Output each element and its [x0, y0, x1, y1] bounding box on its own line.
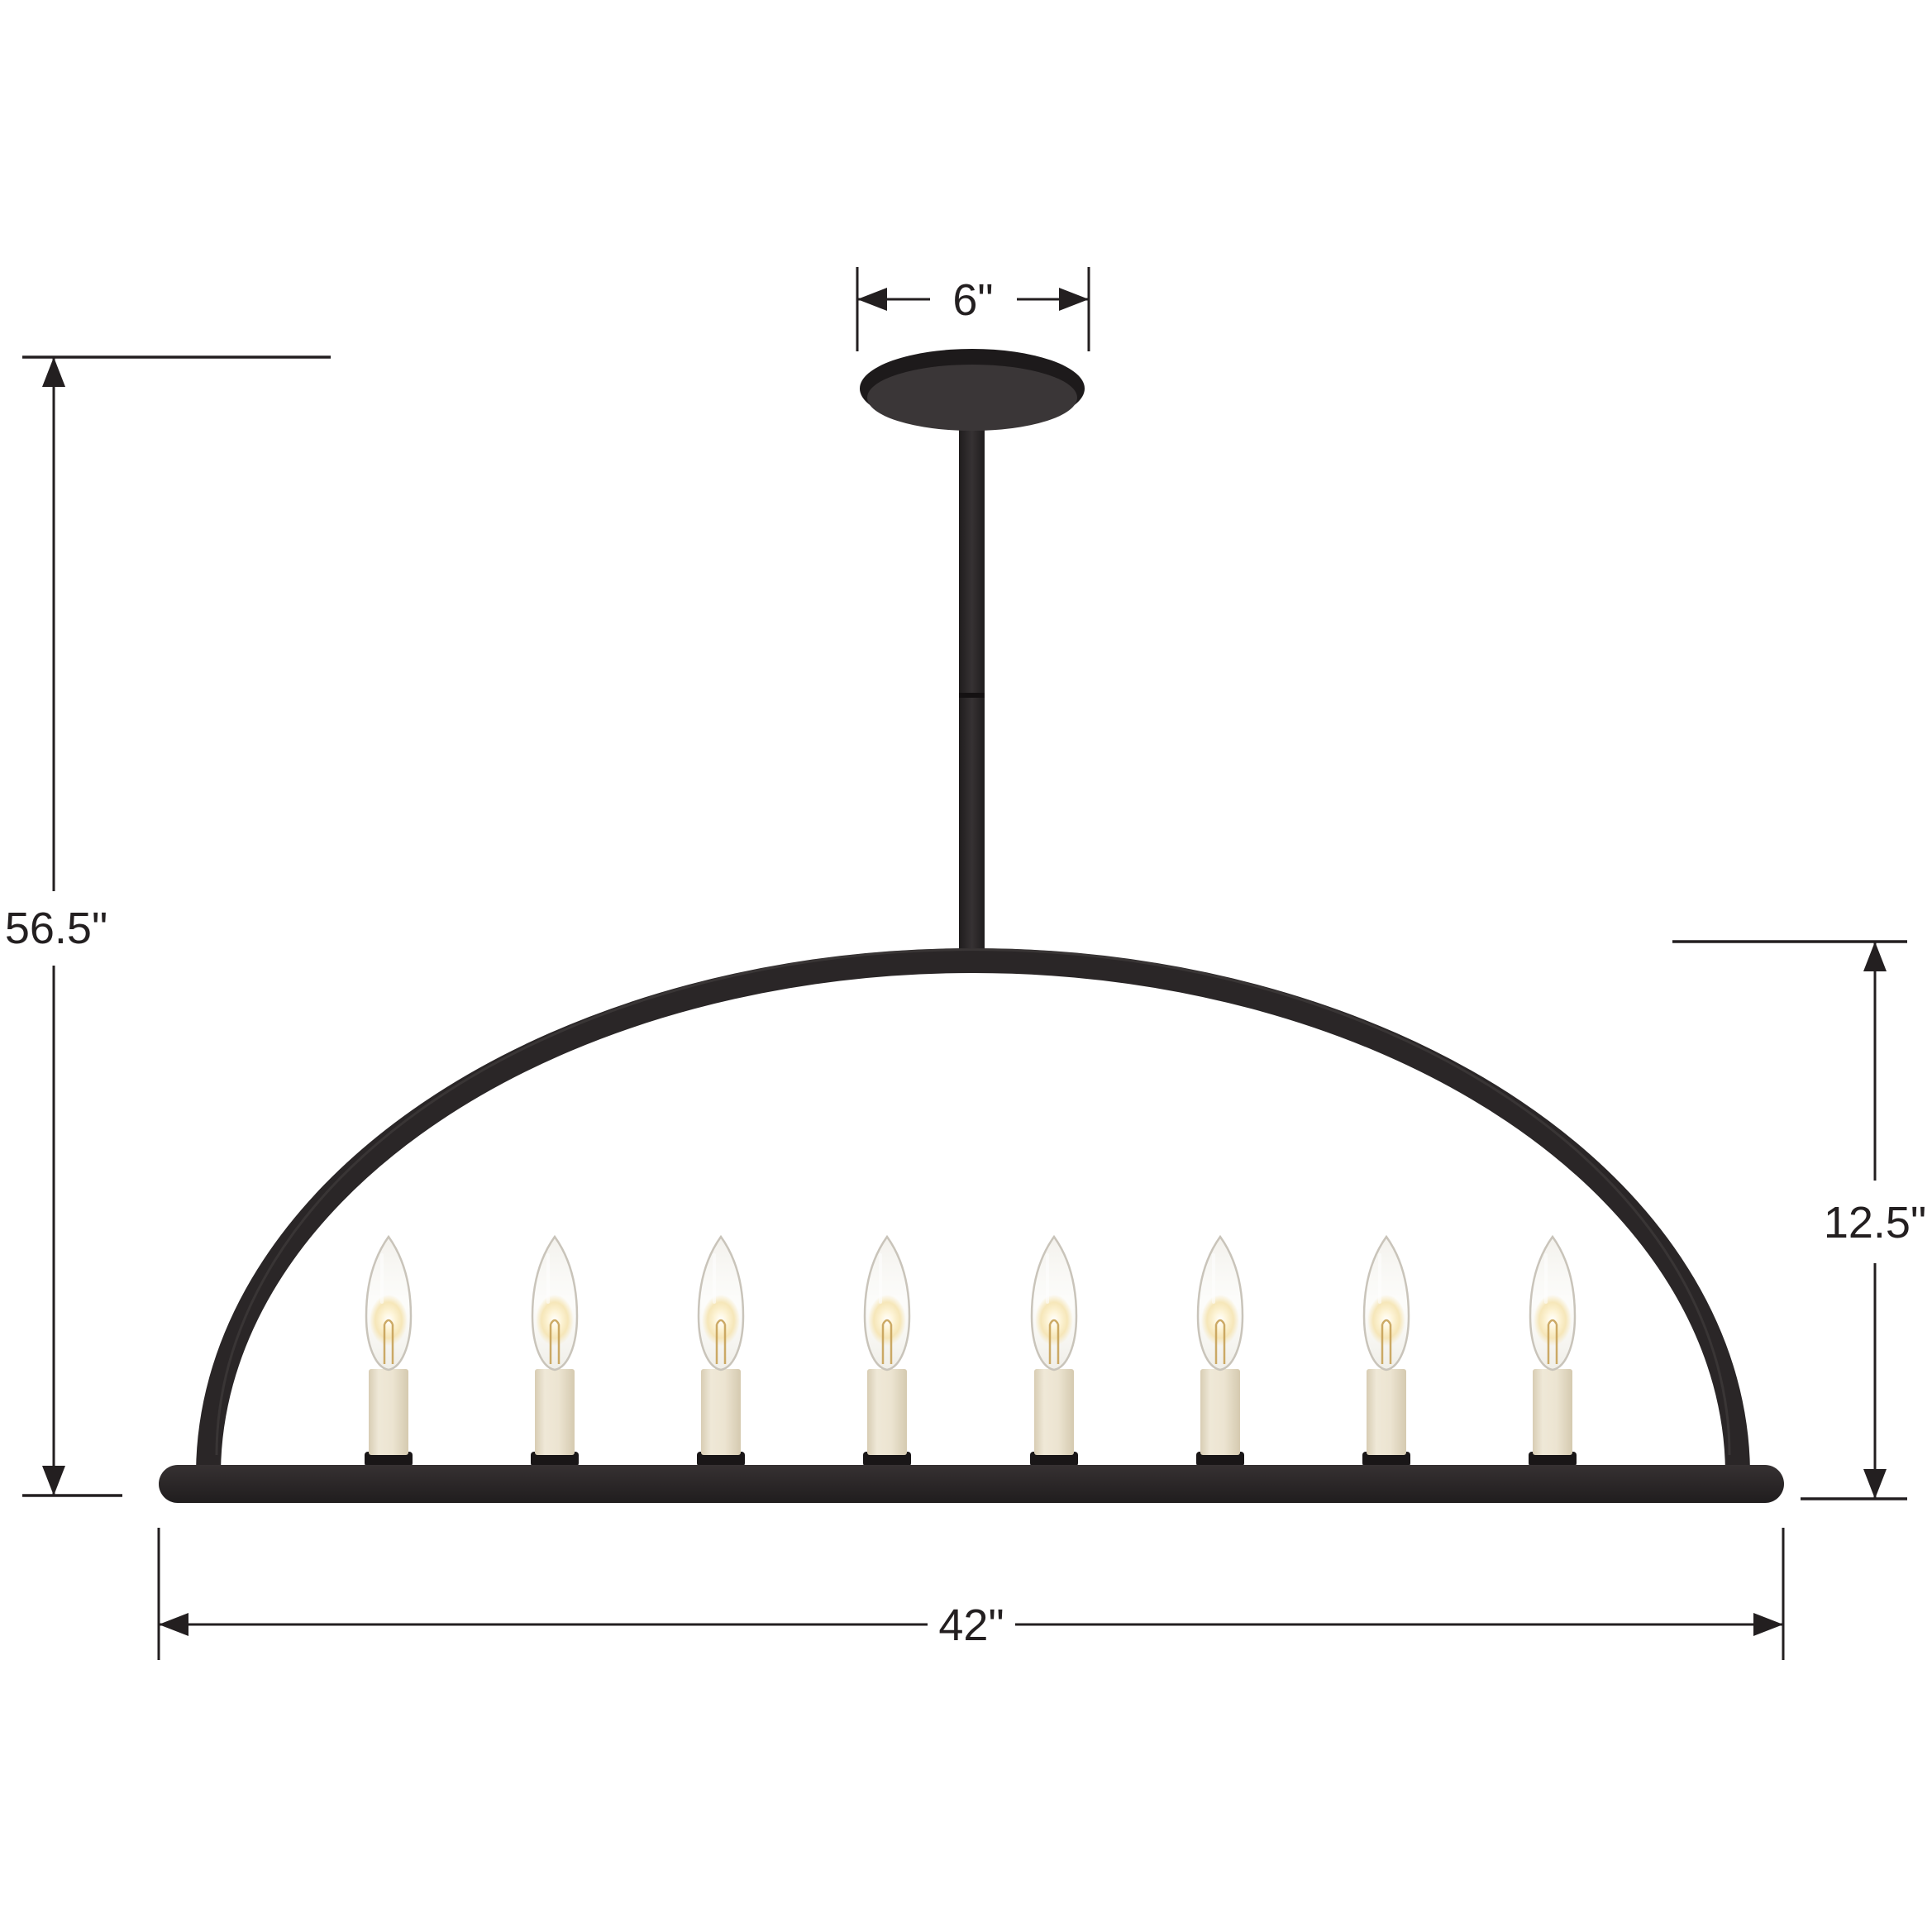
- arrow-down-icon: [1863, 1469, 1887, 1499]
- dimension-canopy-width: 6": [857, 267, 1089, 351]
- arch-frame-highlight: [217, 950, 1729, 1455]
- candle-light: [1030, 1237, 1078, 1467]
- linear-bar: [159, 1465, 1784, 1503]
- candle-sleeve: [1034, 1369, 1074, 1455]
- candle-light: [531, 1237, 579, 1467]
- candle-light: [365, 1237, 413, 1467]
- chandelier-diagram-canvas: 6" 56.5" 12.5" 42": [0, 0, 1932, 1932]
- dimension-body-height: 12.5": [1672, 942, 1926, 1499]
- arrow-up-icon: [42, 357, 65, 387]
- candle-light: [1529, 1237, 1577, 1467]
- candle-lights-group: [365, 1237, 1577, 1467]
- candle-sleeve: [1200, 1369, 1240, 1455]
- candle-light: [697, 1237, 745, 1467]
- candle-sleeve: [1367, 1369, 1406, 1455]
- candle-light: [1362, 1237, 1410, 1467]
- candle-sleeve: [701, 1369, 741, 1455]
- candle-light: [863, 1237, 911, 1467]
- canopy-face: [867, 365, 1077, 431]
- product-dimension-diagram: 6" 56.5" 12.5" 42": [0, 0, 1932, 1932]
- canopy-width-label: 6": [952, 275, 993, 325]
- candle-sleeve: [369, 1369, 408, 1455]
- candle-sleeve: [535, 1369, 575, 1455]
- arrow-right-icon: [1059, 288, 1089, 311]
- hang-rod: [959, 412, 985, 961]
- body-height-label: 12.5": [1824, 1198, 1926, 1247]
- candle-sleeve: [1533, 1369, 1572, 1455]
- ceiling-canopy: [860, 349, 1085, 431]
- arrow-up-icon: [1863, 942, 1887, 971]
- arrow-left-icon: [857, 288, 887, 311]
- arch-frame: [208, 961, 1738, 1475]
- overall-height-label: 56.5": [5, 904, 107, 953]
- overall-width-label: 42": [938, 1600, 1004, 1650]
- arrow-left-icon: [159, 1613, 188, 1636]
- arrow-down-icon: [42, 1466, 65, 1496]
- candle-sleeve: [867, 1369, 907, 1455]
- dimension-overall-width: 42": [159, 1528, 1783, 1660]
- arrow-right-icon: [1753, 1613, 1783, 1636]
- dimension-overall-height: 56.5": [5, 357, 331, 1496]
- candle-light: [1196, 1237, 1244, 1467]
- rod-coupler-seam: [959, 693, 985, 698]
